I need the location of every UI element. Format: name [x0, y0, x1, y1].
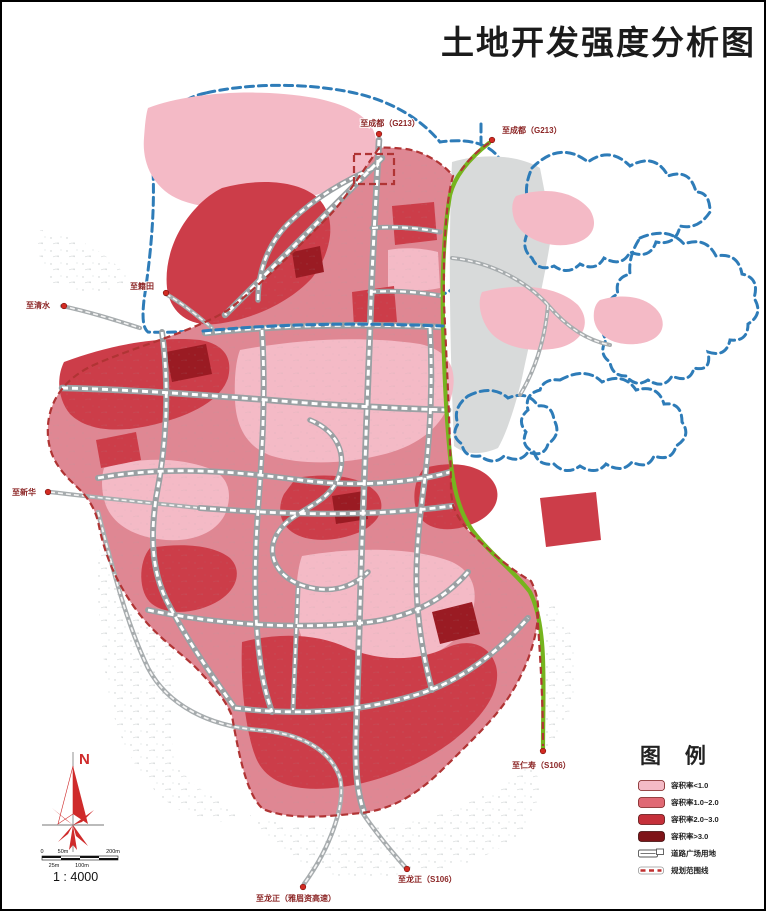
- scale-tick: 200m: [106, 849, 120, 855]
- far-2-3-swatch: [638, 814, 665, 825]
- far-gt3-swatch: [638, 831, 665, 842]
- legend-item-far-2-3: 容积率2.0~3.0: [638, 814, 760, 825]
- legend-item-far-1-2: 容积率1.0~2.0: [638, 797, 760, 808]
- road-label: 至龙正（S106）: [398, 874, 457, 884]
- scale-ratio: 1 : 4000: [53, 870, 98, 884]
- legend-title: 图 例: [640, 740, 760, 770]
- road-plaza-swatch-icon: [638, 848, 665, 859]
- road-label: 至清水: [26, 300, 51, 310]
- legend-label: 道路广场用地: [671, 848, 716, 859]
- scale-tick: 100m: [75, 863, 89, 869]
- scale-bar: 0 50m 200m 25m 100m 1 : 4000: [40, 849, 120, 884]
- legend-label: 容积率1.0~2.0: [671, 797, 719, 808]
- compass-north-label: N: [79, 751, 90, 768]
- land-development-intensity-map-page: 土地开发强度分析图: [0, 0, 766, 911]
- road-label: 至成都（G213）: [502, 125, 562, 135]
- legend-item-planning-boundary: 规划范围线: [638, 865, 760, 876]
- far-lt1-swatch: [638, 780, 665, 791]
- legend-panel: 图 例 容积率<1.0 容积率1.0~2.0 容积率2.0~3.0 容积率>3.…: [638, 740, 760, 882]
- legend-label: 规划范围线: [671, 865, 709, 876]
- planning-boundary-swatch-icon: [638, 865, 665, 876]
- road-label: 至成都（G213）: [360, 118, 420, 128]
- scale-tick: 0: [40, 849, 43, 855]
- road-label: 至龙正（雅眉资高速）: [256, 893, 336, 903]
- legend-item-far-gt3: 容积率>3.0: [638, 831, 760, 842]
- legend-label: 容积率<1.0: [671, 780, 708, 791]
- road-label: 至仁寿（S106）: [512, 760, 571, 770]
- road-label: 至籍田: [130, 281, 154, 291]
- scale-tick: 50m: [58, 849, 69, 855]
- scale-tick: 25m: [49, 863, 60, 869]
- page-title: 土地开发强度分析图: [441, 16, 756, 64]
- compass-rose: N: [42, 751, 104, 852]
- legend-label: 容积率2.0~3.0: [671, 814, 719, 825]
- legend-label: 容积率>3.0: [671, 831, 708, 842]
- legend-item-road-plaza: 道路广场用地: [638, 848, 760, 859]
- road-label: 至新华: [12, 487, 36, 497]
- legend-item-far-lt1: 容积率<1.0: [638, 780, 760, 791]
- far-1-2-swatch: [638, 797, 665, 808]
